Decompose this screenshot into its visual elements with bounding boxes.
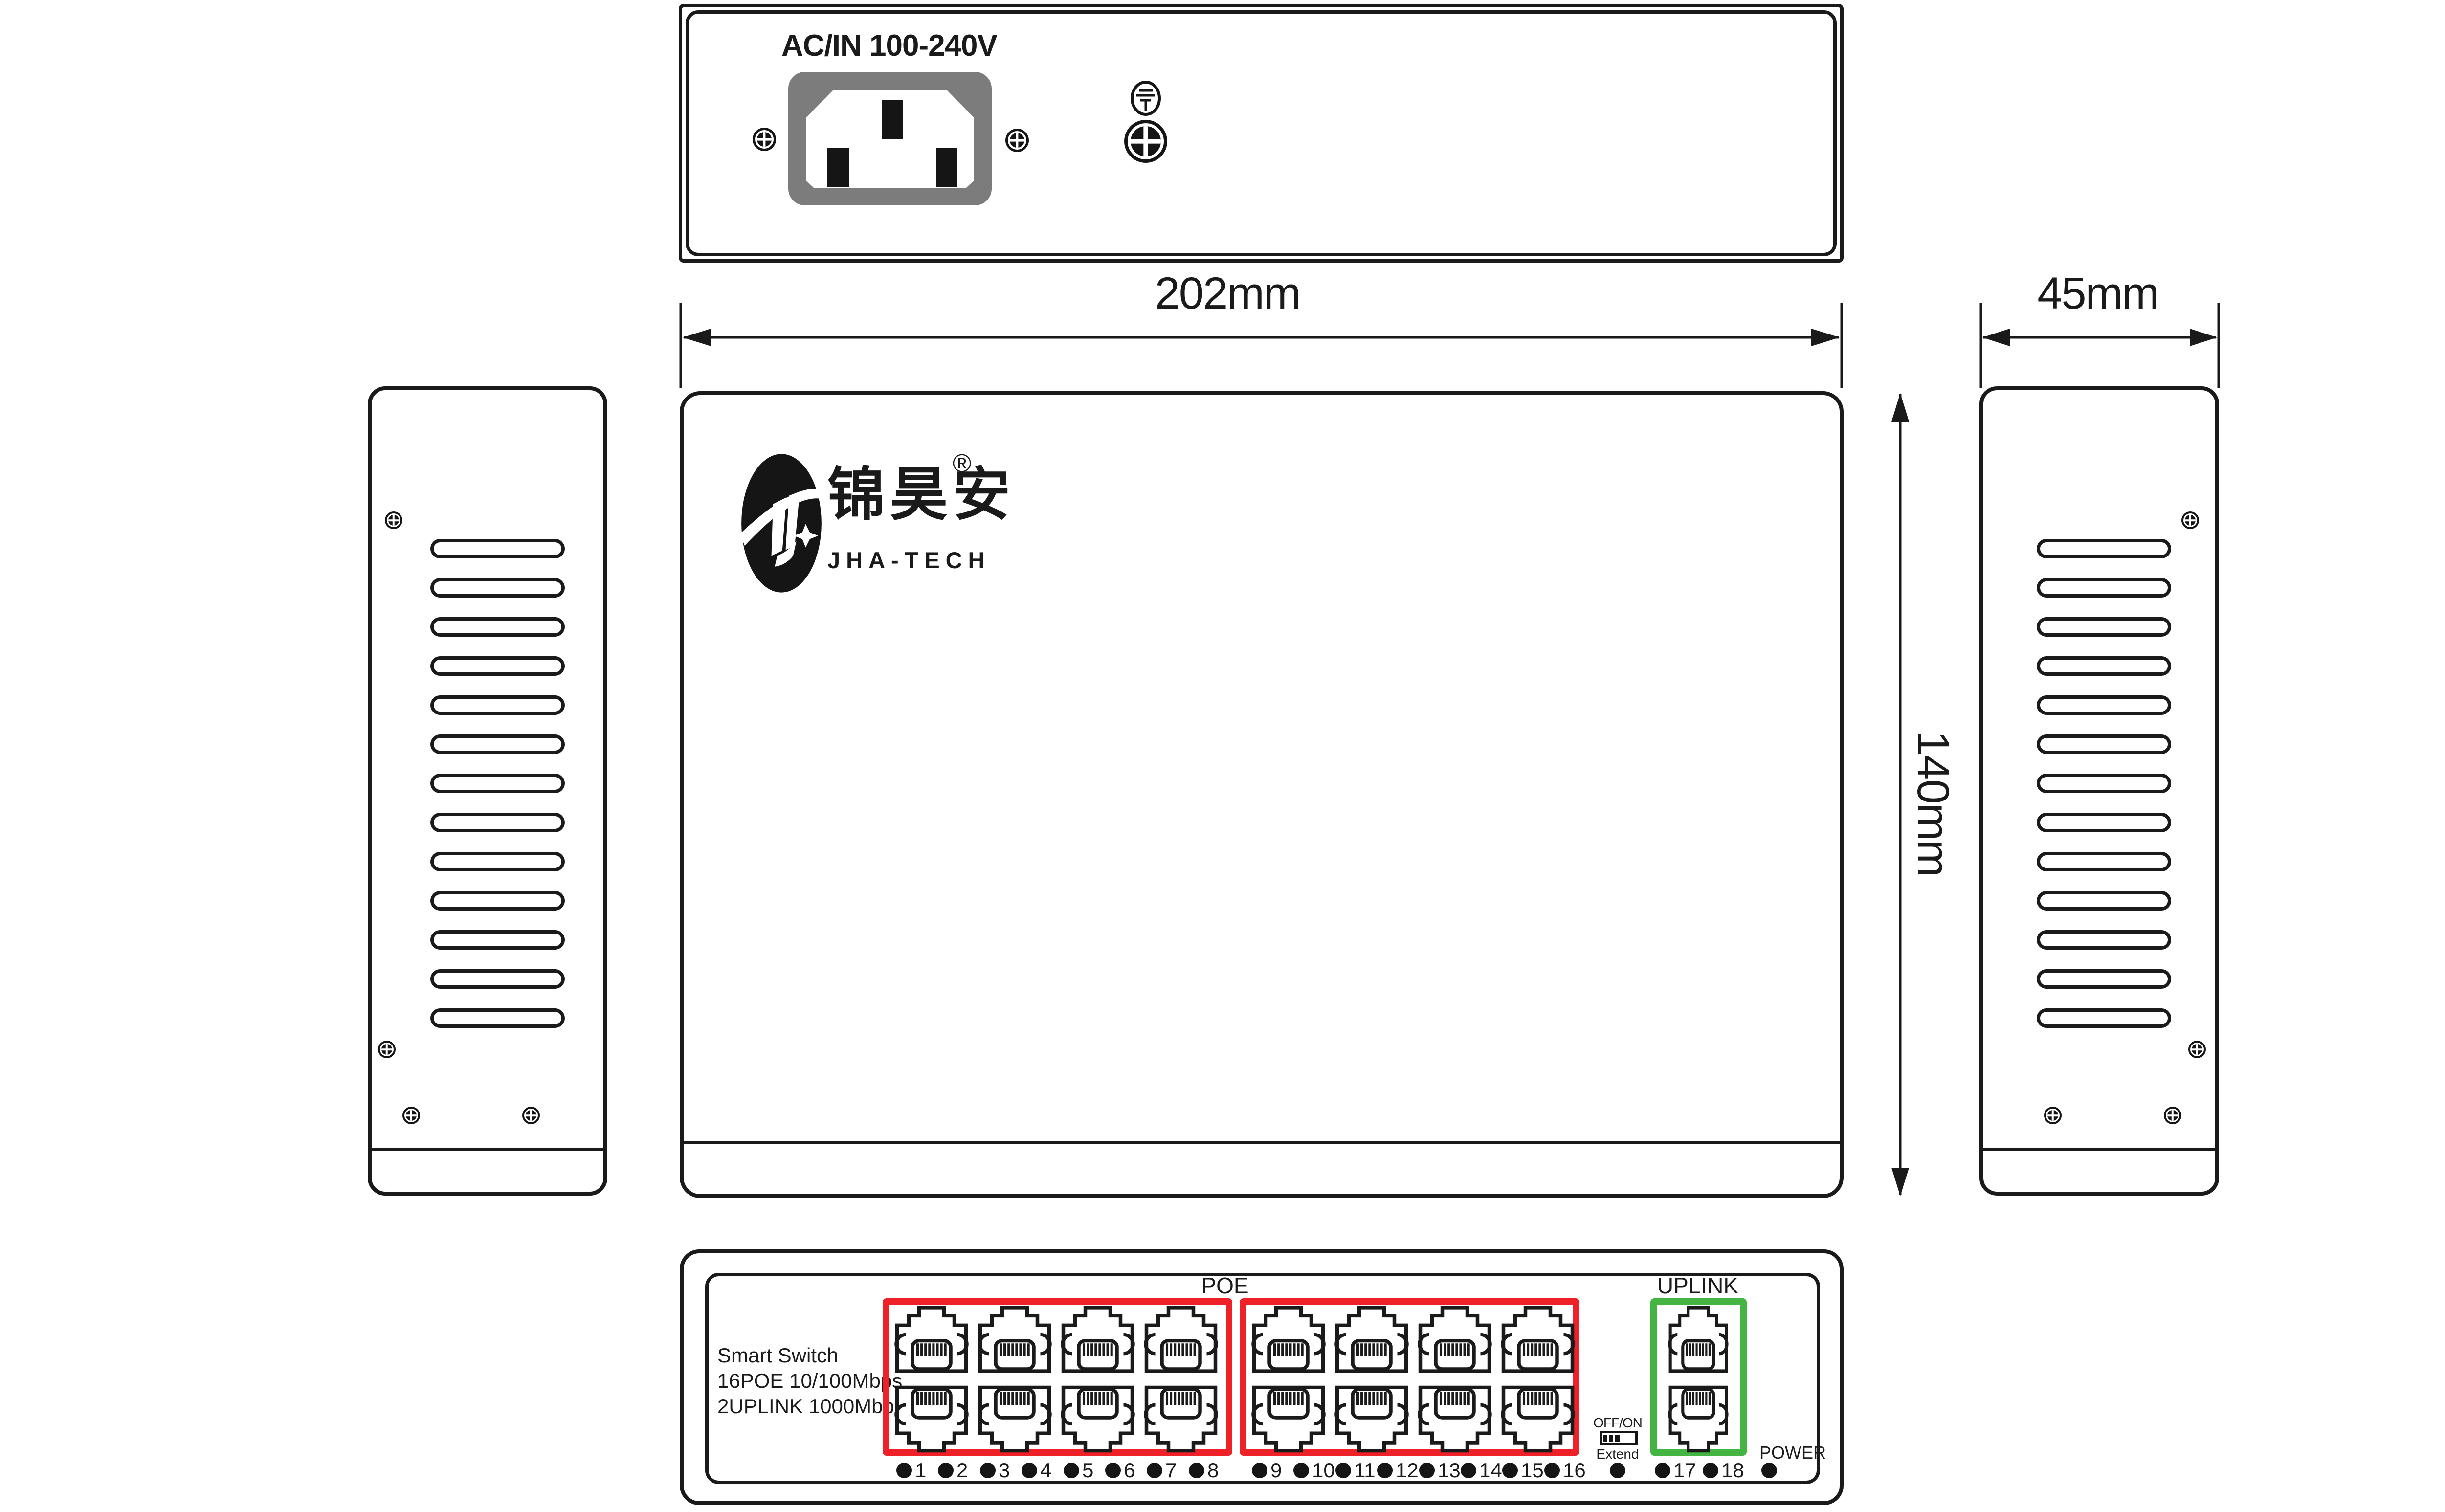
led-label: 6 [1124, 1459, 1135, 1482]
extend-switch-top-label: OFF/ON [1569, 1415, 1667, 1431]
left-screw-bottom-1 [404, 1109, 418, 1122]
led-dot [1610, 1463, 1625, 1478]
rj45-port [1501, 1385, 1575, 1453]
vent-slot [430, 969, 565, 989]
right-side-lip-line [1982, 1148, 2216, 1151]
led-dot [1252, 1463, 1267, 1478]
vent-slot [2037, 930, 2171, 950]
left-side-lip-line [371, 1148, 604, 1151]
extend-switch-knob [1603, 1435, 1620, 1442]
uplink-group-label: UPLINK [1600, 1272, 1796, 1299]
vent-slot [2037, 1008, 2171, 1028]
vent-slot [430, 891, 565, 911]
vent-slot [430, 656, 565, 676]
rj45-port [1668, 1385, 1728, 1453]
vent-slot [430, 774, 565, 793]
led-dot [1147, 1463, 1162, 1478]
led-label: 14 [1479, 1459, 1502, 1482]
right-screw-top [2183, 513, 2197, 527]
brand-logo-en: JHA-TECH [827, 547, 991, 574]
vent-slot [430, 695, 565, 715]
led-dot [1655, 1463, 1670, 1478]
vent-slot [2037, 734, 2171, 754]
vent-slot [430, 539, 565, 558]
led-label: 16 [1563, 1459, 1586, 1482]
dim-width-line [679, 299, 1844, 392]
left-screw-mid [380, 1043, 394, 1056]
led-label: 9 [1270, 1459, 1282, 1482]
vent-slot [430, 930, 565, 950]
led-label: 13 [1438, 1459, 1461, 1482]
led-label: 3 [999, 1459, 1010, 1482]
rj45-port [1061, 1306, 1134, 1373]
top-view-lip-line [683, 1141, 1841, 1144]
right-screw-bottom-1 [2046, 1109, 2060, 1122]
rj45-port [1252, 1385, 1325, 1453]
led-label: 7 [1165, 1459, 1177, 1482]
left-screw-top [387, 513, 400, 527]
led-label: 5 [1082, 1459, 1093, 1482]
led-label: 2 [956, 1459, 968, 1482]
led-label: 11 [1354, 1459, 1376, 1482]
vent-slot [2037, 774, 2171, 793]
led-dot [1544, 1463, 1560, 1478]
rj45-port [1144, 1306, 1218, 1373]
power-inlet [788, 72, 992, 205]
led-label: 10 [1312, 1459, 1335, 1482]
right-screw-mid [2190, 1043, 2204, 1056]
led-dot [1335, 1463, 1351, 1478]
vent-slot [2037, 852, 2171, 871]
power-inlet-socket [806, 90, 974, 188]
led-dot [1377, 1463, 1393, 1478]
vent-slot [430, 734, 565, 754]
rear-screw-left [755, 130, 774, 149]
vent-slot [2037, 656, 2171, 676]
poe-group-label: POE [1127, 1272, 1323, 1299]
rear-screw-right [1008, 131, 1026, 150]
vent-slot [2037, 617, 2171, 637]
ac-in-label: AC/IN 100-240V [781, 28, 997, 63]
brand-logo-cn: 锦昊安 [827, 466, 1015, 524]
inlet-pin-neutral [936, 148, 957, 187]
front-info-line-3: 2UPLINK 1000Mbps [717, 1395, 905, 1418]
led-dot [1461, 1463, 1476, 1478]
led-dot [1105, 1463, 1121, 1478]
vent-slot [2037, 969, 2171, 989]
led-dot [1703, 1463, 1718, 1478]
vent-slot [430, 1008, 565, 1028]
led-label: 8 [1207, 1459, 1219, 1482]
mechanical-drawing: AC/IN 100-240V 202mm 45mm [0, 0, 2445, 1512]
led-dot [1502, 1463, 1518, 1478]
led-dot [1189, 1463, 1204, 1478]
led-dot [1293, 1463, 1309, 1478]
dim-depth-line [1979, 299, 2220, 392]
rj45-port [978, 1385, 1051, 1453]
vent-slot [2037, 578, 2171, 598]
led-dot [1022, 1463, 1037, 1478]
rear-screw-ground [1128, 123, 1164, 159]
led-label: 18 [1721, 1459, 1744, 1482]
rj45-port [1501, 1306, 1575, 1373]
rj45-port [1252, 1306, 1325, 1373]
inlet-pin-earth [882, 100, 903, 139]
left-screw-bottom-2 [524, 1109, 538, 1122]
vent-slot [430, 852, 565, 871]
brand-logo-icon [739, 452, 823, 594]
led-dot [1761, 1463, 1777, 1478]
led-label: 17 [1673, 1459, 1696, 1482]
vent-slot [430, 617, 565, 637]
rj45-port [1335, 1306, 1408, 1373]
front-info-line-2: 16POE 10/100Mbps [717, 1369, 902, 1393]
led-label: 12 [1396, 1459, 1419, 1482]
rj45-port [1418, 1385, 1491, 1453]
vent-slot [430, 813, 565, 832]
vent-slot [2037, 891, 2171, 911]
vent-slot [430, 578, 565, 598]
rj45-port [1335, 1385, 1408, 1453]
inlet-pin-line [827, 148, 849, 187]
vent-slot [2037, 813, 2171, 832]
rj45-port [1144, 1385, 1218, 1453]
extend-switch [1600, 1431, 1638, 1445]
rj45-port [978, 1306, 1051, 1373]
dim-height-label: 140mm [1900, 731, 1958, 858]
rj45-port [895, 1385, 968, 1453]
rj45-port [1061, 1385, 1134, 1453]
vent-slot [2037, 539, 2171, 558]
rj45-port [1418, 1306, 1491, 1373]
brand-logo-reg: ® [953, 449, 971, 478]
power-label: POWER [1759, 1443, 1826, 1463]
vent-slot [2037, 695, 2171, 715]
led-dot [980, 1463, 996, 1478]
rj45-port [895, 1306, 968, 1373]
led-dot [1419, 1463, 1435, 1478]
led-label: 4 [1040, 1459, 1051, 1482]
rj45-port [1668, 1306, 1728, 1373]
ground-symbol-icon [1130, 80, 1161, 116]
front-info-line-1: Smart Switch [717, 1344, 838, 1367]
led-label: 15 [1521, 1459, 1544, 1482]
led-dot [1064, 1463, 1079, 1478]
led-dot [938, 1463, 954, 1478]
led-label: 1 [915, 1459, 926, 1482]
led-dot [896, 1463, 912, 1478]
right-screw-bottom-2 [2166, 1109, 2179, 1122]
